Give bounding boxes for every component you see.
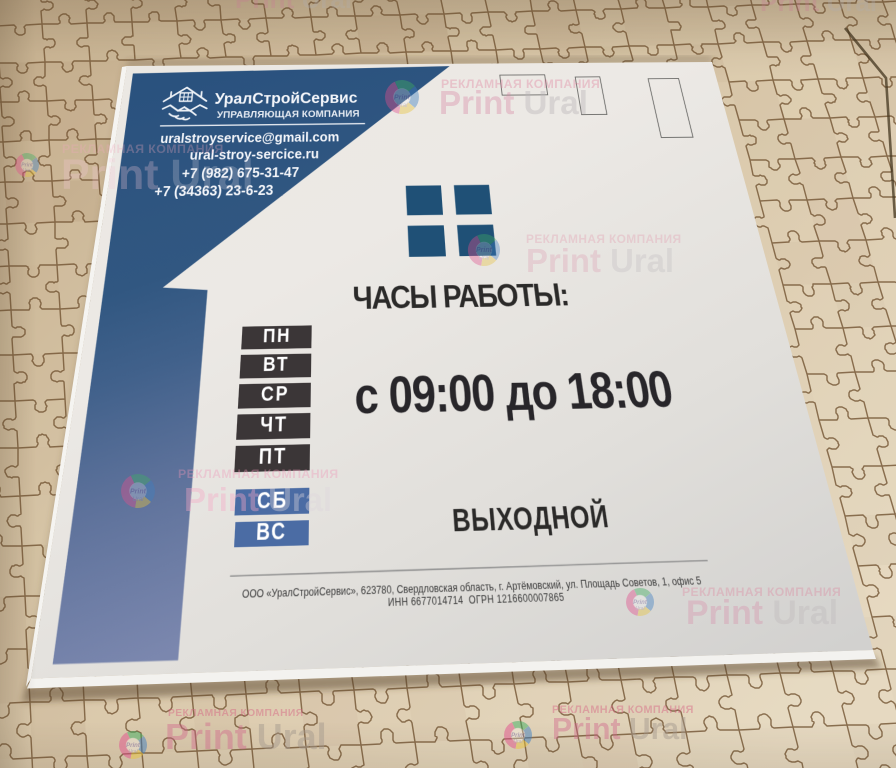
svg-text:Ural: Ural: [513, 739, 523, 745]
svg-text:Print: Print: [511, 733, 526, 739]
